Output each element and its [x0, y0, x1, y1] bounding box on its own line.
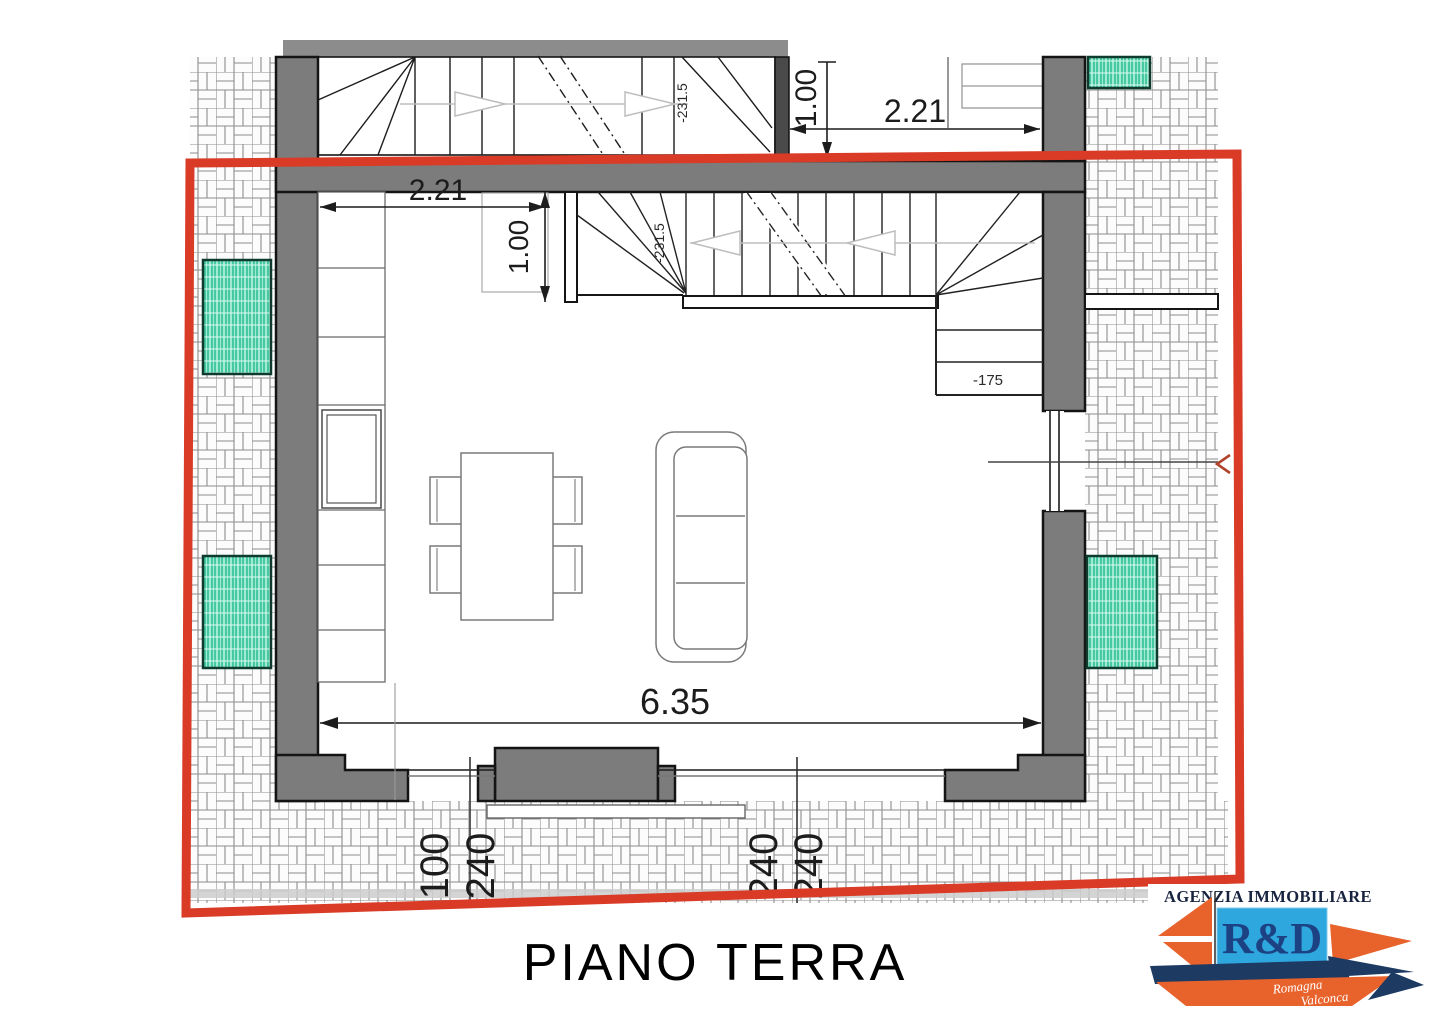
stair-level-label: -231.5: [651, 223, 667, 263]
wall-bottom-center-tab-r: [658, 766, 675, 801]
planter: [1087, 556, 1157, 668]
dimension-hall-depth: 1.00: [503, 192, 550, 302]
planter: [203, 556, 271, 668]
upper-floor-fragment: -231.5 2.21 1.00: [283, 40, 1083, 162]
wall-bottom-center: [495, 748, 658, 801]
svg-text:2.21: 2.21: [409, 174, 467, 207]
paving-right: [1085, 57, 1218, 903]
stair-stringer: [683, 296, 938, 308]
wall-bottom-right: [945, 755, 1085, 801]
agency-logo: AGENZIA IMMOBILIARE R&D Romagna Valconca: [1148, 884, 1440, 1018]
party-wall: [775, 57, 789, 162]
planter: [203, 260, 271, 374]
svg-text:2.21: 2.21: [884, 93, 946, 129]
site-offset-label: 100: [413, 833, 457, 900]
entry-level-label: -175: [973, 372, 1003, 389]
dining-table: [461, 453, 553, 620]
kitchen-counter: [318, 192, 385, 682]
logo-agency-line: AGENZIA IMMOBILIARE: [1164, 887, 1372, 906]
svg-text:1.00: 1.00: [503, 220, 534, 275]
sofa: [656, 432, 747, 662]
floor-plan: -231.5 2.21 1.00: [0, 0, 1440, 1018]
upper-stair-level-label: -231.5: [674, 83, 690, 123]
wall-right-upper: [1043, 192, 1085, 411]
ground-stair: -231.5 -175: [565, 191, 1043, 395]
stair-winders-left: [577, 192, 686, 293]
planter: [1088, 57, 1150, 88]
paving-left: [190, 57, 278, 903]
dining-set: [430, 453, 582, 620]
wall-bottom-center-tab-l: [478, 766, 495, 801]
dimension-room-width: 6.35: [320, 681, 1041, 800]
stair-partition-wall: [565, 192, 577, 302]
upper-slab-band: [283, 40, 788, 57]
logo-initials: R&D: [1222, 914, 1322, 963]
exterior-sill: [487, 805, 745, 818]
entry-arrow-marker: [1217, 455, 1230, 473]
wall-right-top: [1043, 57, 1085, 161]
entry-canopy: [1085, 294, 1218, 309]
wall-bottom-left: [276, 755, 408, 801]
right-window: [1046, 411, 1064, 511]
svg-text:1.00: 1.00: [790, 69, 823, 127]
dimension-upper-depth: 1.00: [790, 62, 836, 158]
site-offset-label: 240: [459, 833, 503, 900]
floor-plan-page: -231.5 2.21 1.00: [0, 0, 1440, 1018]
svg-text:6.35: 6.35: [640, 681, 710, 722]
floor-title: PIANO TERRA: [523, 934, 908, 992]
